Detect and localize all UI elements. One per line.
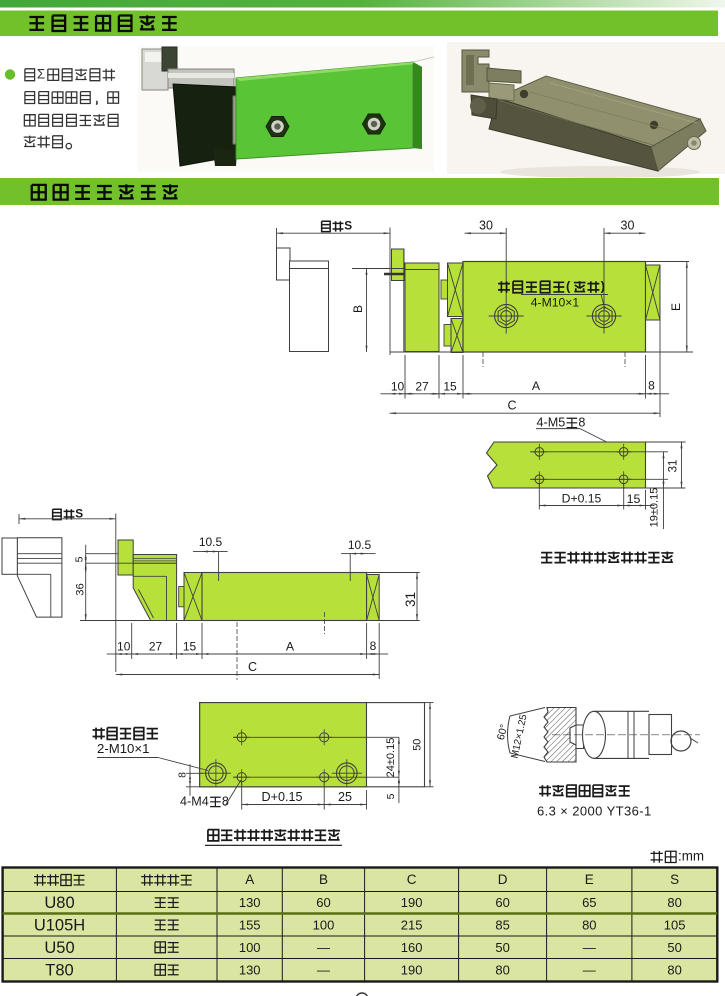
svg-text:—: —	[317, 962, 330, 977]
svg-text:215: 215	[401, 917, 423, 932]
svg-text:8: 8	[578, 415, 585, 429]
svg-text:E: E	[669, 303, 683, 311]
svg-text:130: 130	[239, 895, 261, 910]
svg-text:B: B	[351, 305, 365, 313]
svg-text:M12×1.25: M12×1.25	[510, 713, 530, 759]
svg-text:160: 160	[401, 940, 423, 955]
svg-text:(: (	[566, 279, 571, 294]
svg-text:2-M10×1: 2-M10×1	[97, 741, 149, 756]
svg-text:50: 50	[667, 940, 681, 955]
svg-text:—: —	[583, 940, 596, 955]
svg-text:30: 30	[479, 219, 493, 233]
svg-text:S: S	[344, 219, 352, 233]
svg-text:100: 100	[313, 917, 335, 932]
svg-text:A: A	[532, 379, 541, 393]
svg-text:B: B	[319, 872, 328, 887]
svg-text:8: 8	[177, 772, 189, 778]
svg-text:U80: U80	[44, 894, 74, 912]
svg-text:85: 85	[495, 917, 509, 932]
svg-text:—: —	[583, 962, 596, 977]
svg-text:Σ: Σ	[37, 67, 45, 82]
svg-text:8: 8	[370, 639, 377, 653]
svg-text:100: 100	[239, 940, 261, 955]
svg-text:4-M10×1: 4-M10×1	[531, 296, 580, 310]
svg-text:E: E	[585, 872, 594, 887]
svg-text:): )	[601, 279, 605, 294]
svg-text:80: 80	[495, 962, 509, 977]
svg-text:10.5: 10.5	[348, 538, 372, 552]
svg-text:15: 15	[183, 640, 197, 654]
svg-text:5: 5	[74, 556, 86, 562]
svg-text:36: 36	[75, 583, 87, 595]
svg-text:D+0.15: D+0.15	[262, 790, 303, 804]
svg-text:A: A	[245, 872, 254, 887]
svg-text:50: 50	[412, 739, 424, 751]
svg-text:15: 15	[627, 492, 641, 506]
svg-text:5: 5	[385, 793, 397, 799]
svg-text:31: 31	[403, 592, 418, 607]
svg-text:60: 60	[316, 895, 330, 910]
svg-text:T80: T80	[45, 961, 73, 979]
svg-text:60: 60	[495, 895, 509, 910]
svg-text:27: 27	[149, 640, 163, 654]
svg-text:24±0.15: 24±0.15	[385, 738, 397, 778]
svg-text::mm: :mm	[678, 849, 704, 864]
svg-text:D: D	[498, 872, 508, 887]
svg-text:30: 30	[621, 219, 635, 233]
svg-text:130: 130	[239, 962, 261, 977]
svg-text:19±0.15: 19±0.15	[649, 488, 661, 528]
svg-text:C: C	[248, 660, 257, 674]
svg-text:15: 15	[443, 379, 457, 393]
svg-text:65: 65	[582, 895, 596, 910]
svg-text:155: 155	[239, 917, 261, 932]
svg-text:80: 80	[582, 917, 596, 932]
svg-text:27: 27	[415, 379, 429, 393]
svg-text:A: A	[286, 640, 295, 654]
svg-text:80: 80	[667, 962, 681, 977]
svg-text:105: 105	[664, 917, 686, 932]
svg-text:U105H: U105H	[34, 916, 85, 934]
svg-text:50: 50	[495, 940, 509, 955]
svg-text:D+0.15: D+0.15	[562, 491, 602, 505]
svg-text:U50: U50	[44, 939, 74, 957]
svg-text:C: C	[407, 872, 417, 887]
svg-text:C: C	[507, 399, 516, 413]
svg-text:—: —	[317, 940, 330, 955]
svg-text:31: 31	[668, 460, 680, 473]
svg-text:25: 25	[338, 790, 352, 804]
svg-text:80: 80	[667, 895, 681, 910]
svg-text:190: 190	[401, 962, 423, 977]
svg-text:4-M5: 4-M5	[537, 415, 566, 429]
svg-text:S: S	[670, 872, 679, 887]
svg-text:10.5: 10.5	[199, 535, 223, 549]
svg-text:4-M4: 4-M4	[180, 794, 209, 808]
svg-text:10: 10	[117, 640, 131, 654]
svg-text:190: 190	[401, 895, 423, 910]
svg-text:6.3 × 2000 YT36-1: 6.3 × 2000 YT36-1	[537, 804, 652, 819]
svg-text:8: 8	[648, 379, 655, 393]
svg-text:10: 10	[391, 379, 405, 393]
